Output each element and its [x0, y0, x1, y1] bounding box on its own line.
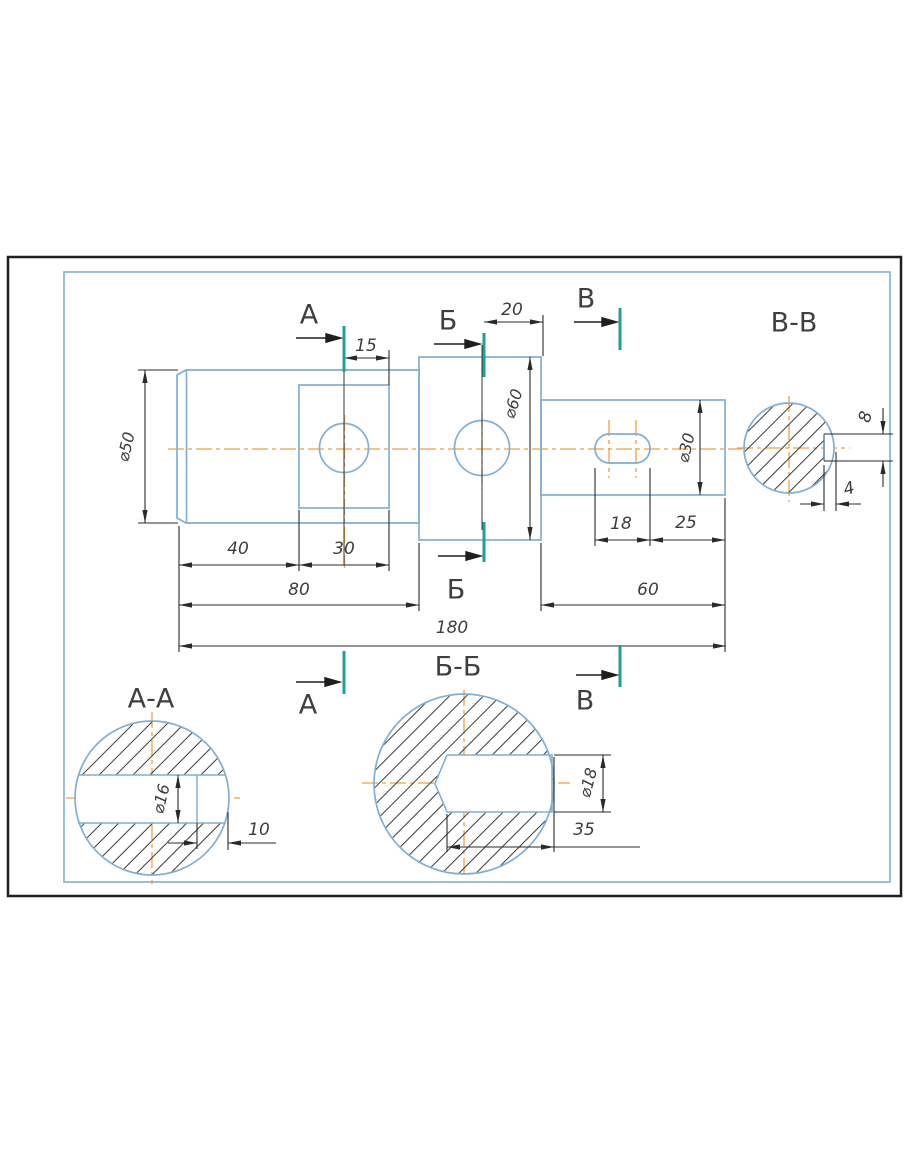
- section-a-slot-void: [64, 775, 236, 823]
- dim-label-25: 25: [675, 513, 697, 533]
- section-view-b-b: Б-Б ⌀18 35: [374, 652, 640, 875]
- dim-label-15: 15: [355, 336, 377, 356]
- dim-label-d18: ⌀18: [575, 766, 601, 800]
- section-arrow-b-bottom: [438, 552, 481, 560]
- dim-label-d50: ⌀50: [113, 430, 138, 464]
- section-view-a-a: А-А ⌀16 10: [64, 684, 276, 876]
- dim-label-30: 30: [333, 539, 355, 559]
- dim-label-60: 60: [637, 580, 659, 600]
- dim-length-20: [484, 315, 543, 356]
- section-letter-a-bottom: А: [299, 690, 318, 721]
- dim-label-d60: ⌀60: [500, 387, 527, 421]
- dim-label-8: 8: [855, 409, 877, 425]
- shaft-segment-30-outline: [541, 400, 725, 495]
- dim-label-35: 35: [573, 820, 595, 840]
- section-arrow-b-top: [434, 340, 480, 348]
- dim-label-80: 80: [288, 580, 310, 600]
- view-title-b-b: Б-Б: [435, 652, 482, 683]
- section-arrow-v-bottom: [576, 671, 617, 679]
- section-arrow-a-top: [296, 334, 341, 342]
- section-arrow-v-top: [574, 318, 617, 326]
- dim-label-18: 18: [610, 514, 632, 534]
- dim-length-18-25: [595, 468, 725, 546]
- technical-drawing: ⌀50 15 20 ⌀60 ⌀30 18 25 40 30 80 60 180: [0, 0, 910, 1155]
- view-title-v-v: В-В: [771, 308, 818, 339]
- section-letter-b-top: Б: [439, 306, 458, 337]
- cutting-traces: [344, 337, 482, 565]
- drawing-sheet: ⌀50 15 20 ⌀60 ⌀30 18 25 40 30 80 60 180: [0, 0, 910, 1155]
- section-letter-v-bottom: В: [576, 686, 595, 717]
- dim-diameter-50: [138, 370, 178, 523]
- shaft-segment-50-outline: [177, 370, 419, 523]
- section-view-v-v: В-В 8 4: [744, 308, 893, 512]
- dim-label-20: 20: [501, 300, 523, 320]
- dim-label-180: 180: [436, 618, 468, 638]
- front-view-dimensions: [138, 315, 726, 652]
- section-b-hole-void: [435, 755, 552, 812]
- view-title-a-a: А-А: [128, 684, 175, 715]
- section-arrow-a-bottom: [296, 678, 340, 686]
- section-letter-b-bottom: Б: [447, 575, 466, 606]
- dim-label-d30: ⌀30: [673, 431, 698, 465]
- dim-label-10: 10: [248, 820, 270, 840]
- dim-label-40: 40: [227, 539, 249, 559]
- dim-label-4: 4: [841, 478, 857, 500]
- section-letter-v-top: В: [577, 284, 596, 315]
- dim-length-40-30: [179, 510, 389, 571]
- section-letter-a-top: А: [300, 300, 319, 331]
